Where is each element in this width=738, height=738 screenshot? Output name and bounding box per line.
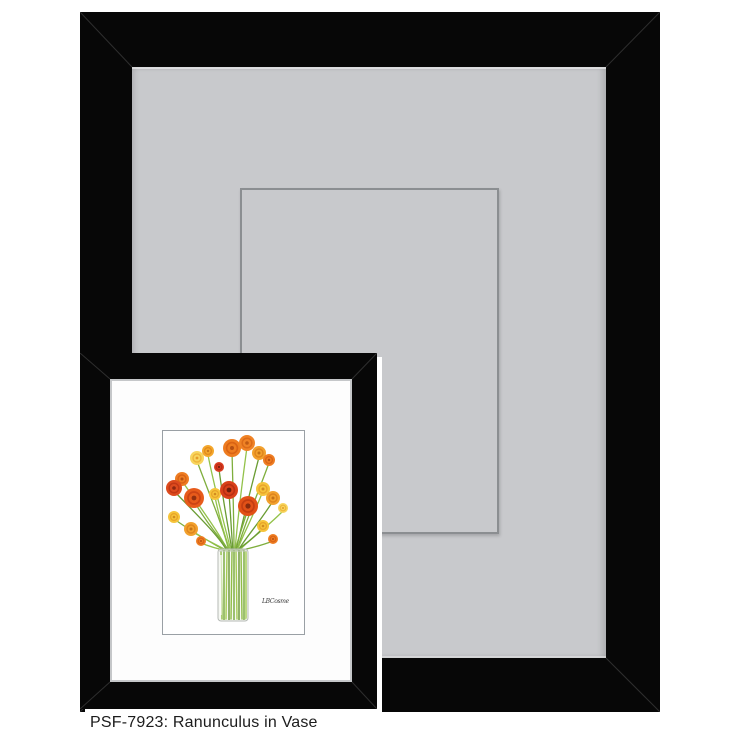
artist-signature: LBCosme (261, 598, 290, 605)
product-image: LBCosme PSF-7923: Ranunculus in Vase (0, 0, 738, 738)
ranunculus-bouquet-illustration: LBCosme (163, 431, 304, 634)
small-frame: LBCosme (80, 353, 377, 709)
caption-text: PSF-7923: Ranunculus in Vase (90, 714, 318, 732)
ranunculus-artwork: LBCosme (162, 430, 305, 635)
glass-vase (218, 549, 248, 621)
small-frame-mat: LBCosme (110, 379, 352, 682)
ranunculus-blooms (166, 435, 288, 546)
